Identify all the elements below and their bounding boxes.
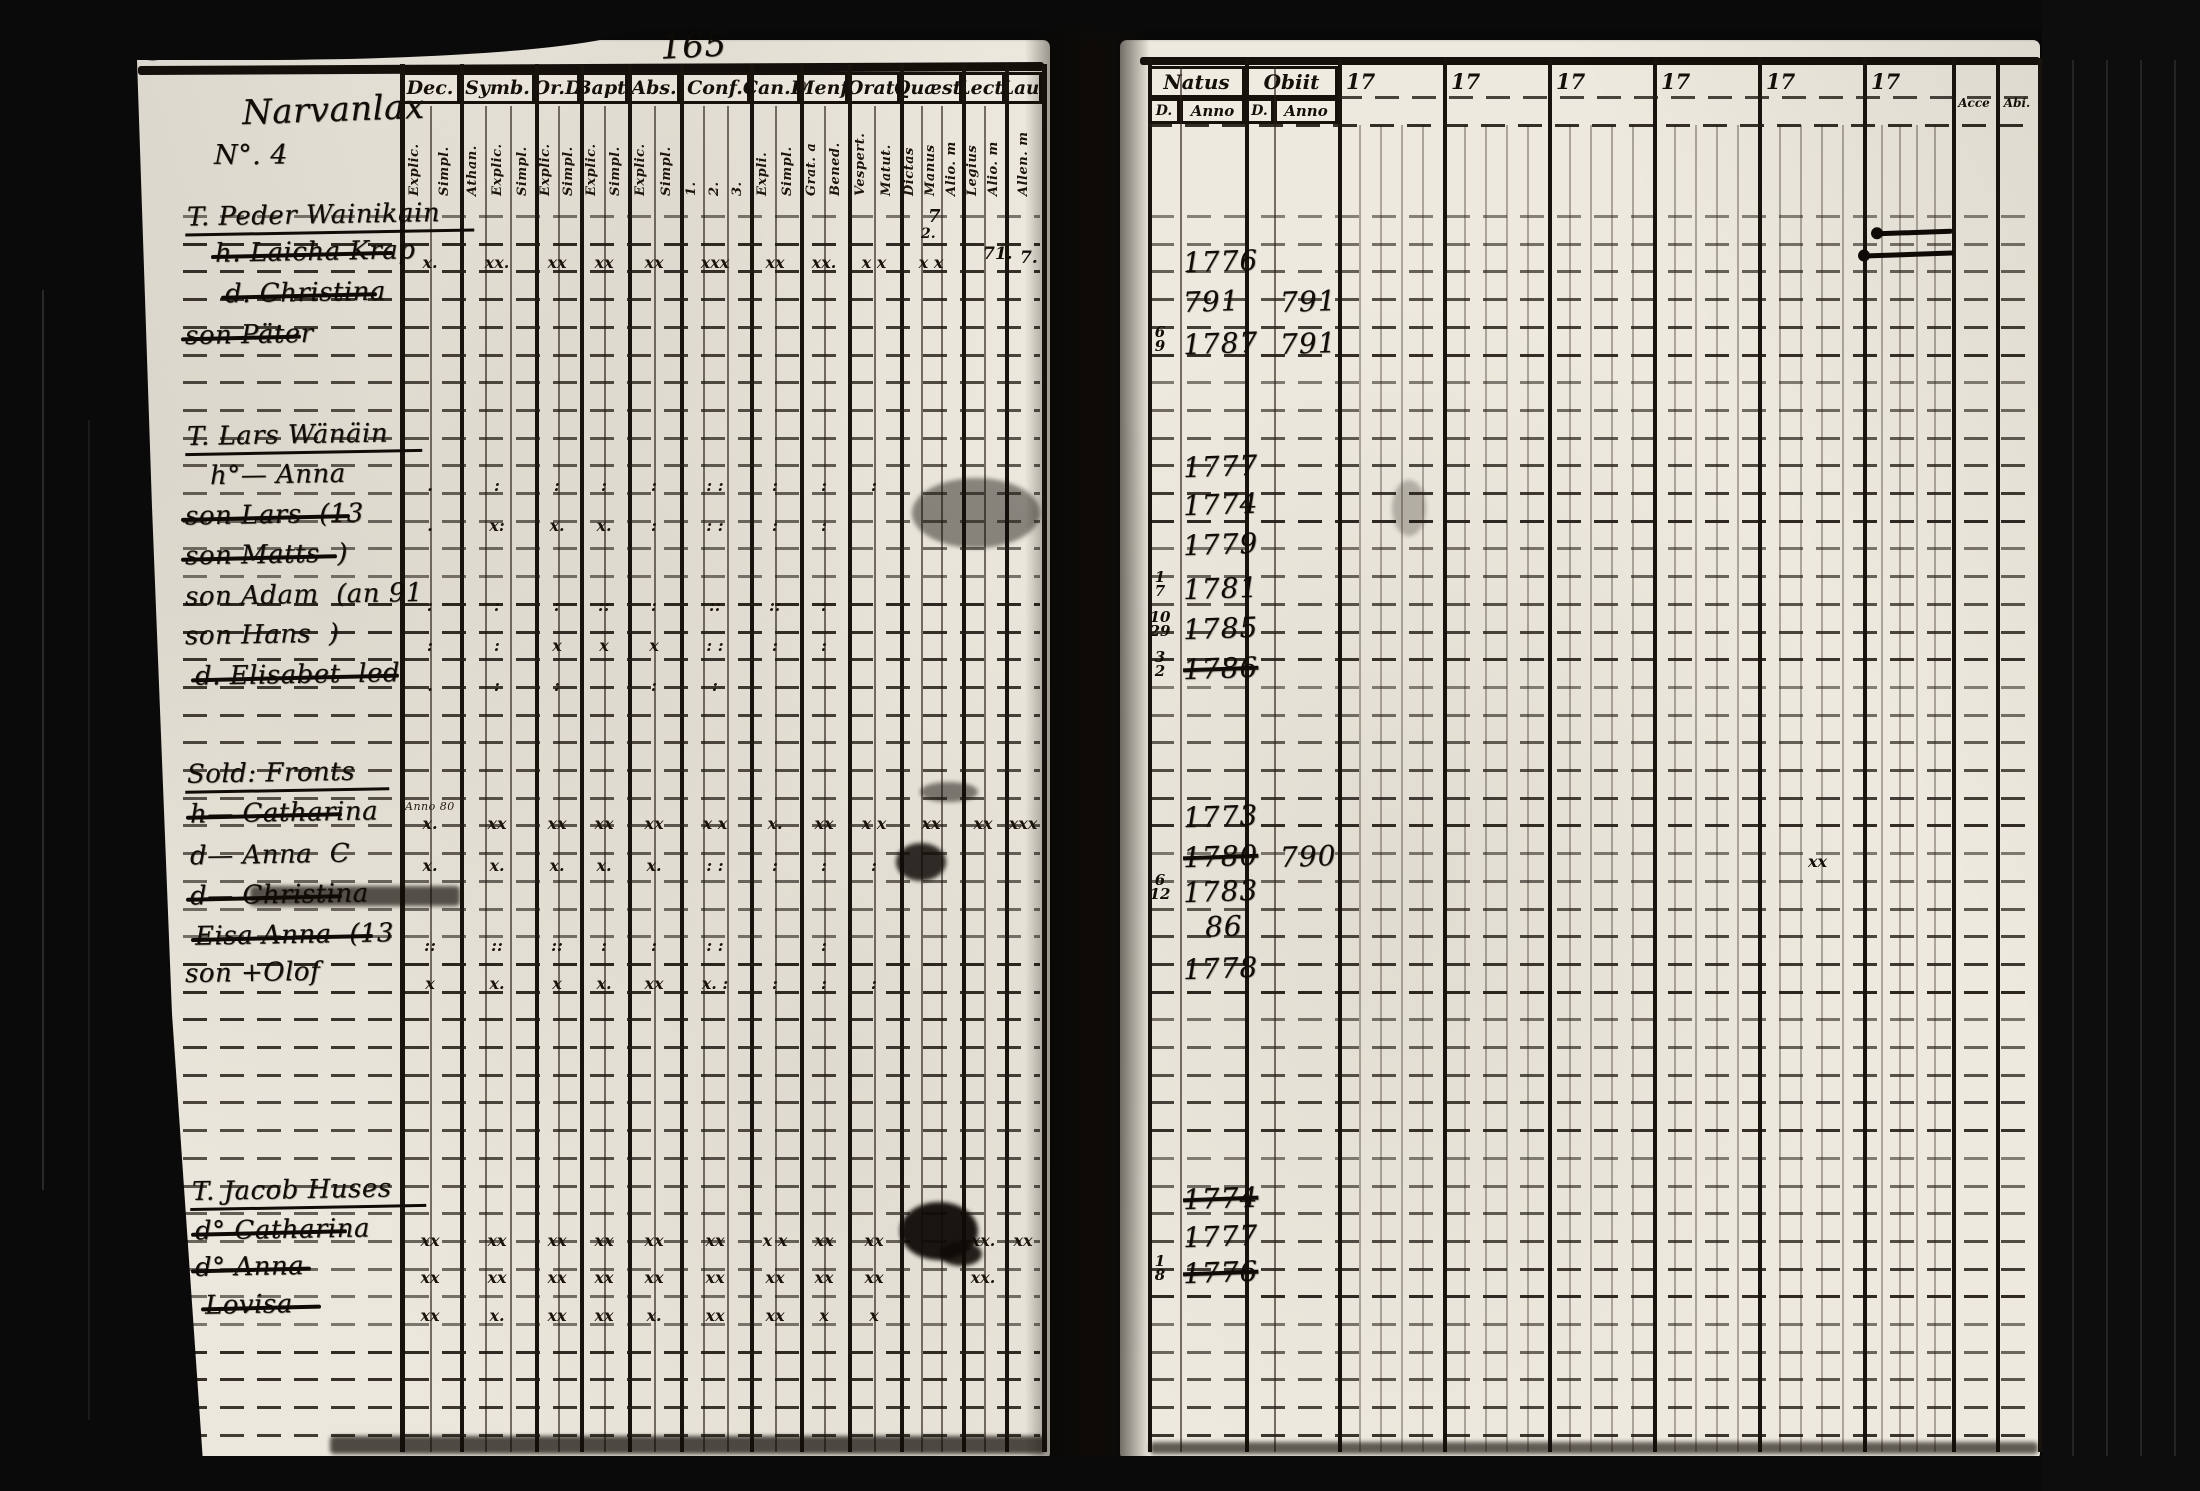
ink-blot — [920, 782, 978, 802]
right-major-line — [1443, 58, 1447, 1452]
year-sub-line — [1422, 125, 1424, 1452]
row-line-left — [183, 1295, 1040, 1298]
grid-major-line — [1042, 64, 1047, 1452]
exam-mark: xx. — [485, 253, 510, 272]
exam-mark: :: — [424, 936, 436, 955]
ink-mark: 71. — [983, 244, 1013, 264]
exam-mark: xx — [765, 253, 784, 272]
exam-mark: xxx — [1009, 814, 1038, 833]
row-line-right — [1150, 1185, 2036, 1188]
exam-mark: : — [821, 936, 827, 955]
exam-mark: : — [494, 636, 500, 655]
exam-mark: : — [651, 476, 657, 495]
ghost-line — [2106, 60, 2108, 1456]
natus-header: Natus — [1148, 66, 1245, 98]
natus-year: 1774 — [1182, 1181, 1258, 1217]
obiit-year: 791 — [1279, 326, 1337, 361]
right-header-rule — [1338, 96, 2038, 99]
year-sub-line — [1674, 125, 1676, 1452]
grid-subline — [510, 106, 512, 1452]
column-subheader: Explic. — [538, 110, 553, 196]
row-line-left — [183, 1101, 1040, 1104]
grid-subline — [558, 106, 560, 1452]
row-line-right — [1150, 575, 2036, 578]
exam-mark: xx — [594, 1231, 613, 1250]
year-sub-line — [1842, 125, 1844, 1452]
row-line-right — [1150, 686, 2036, 689]
scanned-parish-register: { "document": { "folio_number": "324", "… — [0, 0, 2200, 1491]
row-line-right — [1150, 1101, 2036, 1104]
year-sub-line — [1380, 125, 1382, 1452]
exam-mark: x. — [596, 516, 611, 535]
exam-mark: xx — [814, 1231, 833, 1250]
natus-year: 791 — [1182, 284, 1240, 319]
exam-mark: : — [651, 516, 657, 535]
exam-mark: x — [552, 974, 562, 993]
row-line-left — [183, 741, 1040, 744]
exam-mark: : — [821, 476, 827, 495]
exam-mark: xx — [547, 814, 566, 833]
column-subheader: Explic. — [490, 110, 505, 196]
year-column-header: 17 — [1758, 66, 1816, 96]
exam-mark: xx. — [812, 253, 837, 272]
exam-mark: : — [772, 636, 778, 655]
column-header-bapt: Bapt. — [580, 72, 628, 104]
row-line-right — [1150, 714, 2036, 717]
exam-mark: xx — [705, 1231, 724, 1250]
scan-scratch — [88, 420, 90, 1420]
exam-mark: xx — [594, 1268, 613, 1287]
natus-year: 1779 — [1182, 527, 1258, 563]
exam-mark: xx — [487, 1268, 506, 1287]
column-header-symb: Symb. — [460, 72, 535, 104]
obiit-anno-header: Anno — [1274, 98, 1338, 124]
exam-mark: x x — [862, 814, 887, 833]
natus-year: 1780 — [1182, 839, 1258, 875]
row-line-right — [1150, 1434, 2036, 1437]
exam-mark: xx — [921, 814, 940, 833]
column-header-lect: Lect. — [962, 72, 1005, 104]
exam-mark: : — [871, 856, 877, 875]
entry-name: son Adam (an 91 — [185, 578, 423, 612]
exam-mark: x. — [596, 974, 611, 993]
right-sub-line — [1274, 66, 1276, 1452]
exam-mark: x — [425, 974, 435, 993]
column-subheader: Explic. — [584, 110, 599, 196]
year-column-header: 17 — [1338, 66, 1396, 96]
natus-year: 1773 — [1182, 799, 1258, 835]
exam-mark: : — [871, 476, 877, 495]
natus-year: 1777 — [1182, 449, 1258, 485]
natus-year: 1787 — [1182, 326, 1258, 362]
exam-mark: x. — [549, 856, 564, 875]
year-sub-line — [1881, 125, 1883, 1452]
column-subheader: 2. — [707, 110, 722, 196]
exam-mark: : : — [706, 636, 723, 655]
exam-mark: : — [651, 676, 657, 695]
column-subheader: Vespert. — [853, 110, 868, 196]
exam-mark: xx — [594, 1306, 613, 1325]
exam-mark: xx — [644, 814, 663, 833]
right-header-rule2 — [1148, 124, 2036, 127]
year-column-header: 17 — [1443, 66, 1501, 96]
exam-mark: : — [821, 596, 827, 615]
natus-day-part: 12 — [1150, 887, 1171, 901]
row-line-right — [1150, 631, 2036, 634]
grid-subline — [775, 106, 777, 1452]
natus-year: 86 — [1204, 909, 1243, 943]
natus-year: 1786 — [1182, 651, 1258, 687]
row-line-left — [183, 354, 1040, 357]
entry-name: d— Anna C — [190, 839, 351, 872]
obiit-day-header: D. — [1245, 98, 1274, 124]
exam-mark: x. — [422, 814, 437, 833]
exam-mark: xx — [594, 814, 613, 833]
grid-subline — [654, 106, 656, 1452]
year-sub-line — [1611, 125, 1613, 1452]
year-sub-line — [1916, 125, 1918, 1452]
natus-day-part: 2 — [1155, 664, 1165, 678]
exam-mark: xx — [705, 1268, 724, 1287]
row-line-right — [1150, 215, 2036, 218]
column-subheader: Expli. — [755, 110, 770, 196]
exam-mark: : — [494, 476, 500, 495]
exam-mark: : — [651, 936, 657, 955]
exam-mark: x. — [549, 516, 564, 535]
exam-mark: xx — [594, 253, 613, 272]
row-line-left — [183, 1157, 1040, 1160]
row-line-right — [1150, 963, 2036, 966]
scan-edge-right — [2042, 0, 2200, 1491]
exam-mark: : — [712, 676, 718, 695]
exam-mark: xx — [547, 1231, 566, 1250]
right-major-line — [1996, 58, 2000, 1452]
register-spread: 324 165 Narvanlax N°. 4 Dec.Explic.Simpl… — [0, 0, 2200, 1491]
exam-mark: xx — [547, 1306, 566, 1325]
exam-mark: : — [554, 676, 560, 695]
row-line-right — [1150, 741, 2036, 744]
column-subheader: Matut. — [879, 110, 894, 196]
exam-mark: x: — [489, 516, 504, 535]
exam-mark: x. — [489, 1306, 504, 1325]
exam-mark: x. — [646, 1306, 661, 1325]
exam-mark: xx — [644, 253, 663, 272]
year-sub-line — [1737, 125, 1739, 1452]
exam-mark: x. — [489, 856, 504, 875]
column-subheader: Legius — [965, 110, 980, 196]
row-line-right — [1150, 1157, 2036, 1160]
right-major-line — [1653, 58, 1657, 1452]
row-line-right — [1150, 464, 2036, 467]
row-line-right — [1150, 381, 2036, 384]
entry-name: son Hans ) — [185, 619, 340, 652]
column-subheader: Allen. m — [1016, 110, 1031, 196]
natus-anno-header: Anno — [1180, 98, 1245, 124]
natus-day-part: 7 — [1155, 584, 1165, 598]
entry-note: Anno 80 — [405, 800, 455, 813]
column-subheader: Athan. — [465, 110, 480, 196]
exam-mark: xx. — [971, 1268, 996, 1287]
column-subheader: Dictas — [902, 110, 917, 196]
year-sub-line — [1899, 125, 1901, 1452]
column-header-lau: Lau. — [1005, 72, 1042, 104]
exam-mark: x — [649, 636, 659, 655]
accessit-header: Acce — [1952, 90, 1996, 116]
exam-mark: x. — [489, 974, 504, 993]
exam-mark: x. — [422, 253, 437, 272]
natus-year: 1774 — [1182, 487, 1258, 523]
row-line-right — [1150, 1323, 2036, 1326]
exam-mark: x. — [646, 856, 661, 875]
year-sub-line — [1716, 125, 1718, 1452]
year-column-header: 17 — [1653, 66, 1711, 96]
natus-year: 1785 — [1182, 611, 1258, 647]
grid-subline — [874, 106, 876, 1452]
ink-mark: xx — [1808, 852, 1827, 871]
natus-year: 1777 — [1182, 1219, 1258, 1255]
exam-mark: : — [427, 636, 433, 655]
entry-heavy-blot — [250, 886, 460, 906]
exam-mark: : : — [706, 476, 723, 495]
exam-mark: : : — [706, 936, 723, 955]
natus-year: 1776 — [1182, 244, 1258, 280]
exam-mark: : — [772, 516, 778, 535]
right-major-line — [1758, 58, 1762, 1452]
natus-day-part: 29 — [1150, 624, 1171, 638]
ink-mark: 7. — [1020, 248, 1038, 268]
right-top-rule — [1140, 57, 2040, 65]
ink-blot — [940, 1242, 982, 1266]
exam-mark: . — [427, 516, 433, 535]
exam-mark: : — [772, 974, 778, 993]
right-sub-line — [1180, 66, 1182, 1452]
column-subheader: Simpl. — [561, 110, 576, 196]
row-line-left — [183, 714, 1040, 717]
exam-mark: x — [869, 1306, 879, 1325]
scan-edge-bottom — [0, 1456, 2200, 1491]
natus-year: 1776 — [1182, 1255, 1258, 1291]
exam-mark: x — [819, 1306, 829, 1325]
exam-mark: . — [427, 676, 433, 695]
exam-mark: : : — [706, 516, 723, 535]
exam-mark: : — [494, 676, 500, 695]
row-line-left — [183, 1129, 1040, 1132]
exam-mark: : — [821, 856, 827, 875]
row-line-left — [183, 409, 1040, 412]
obiit-year: 791 — [1279, 284, 1337, 319]
grid-subline — [430, 106, 432, 1452]
exam-mark: x. : — [702, 974, 729, 993]
exam-mark: x x — [919, 253, 944, 272]
year-sub-line — [1506, 125, 1508, 1452]
row-line-right — [1150, 991, 2036, 994]
grid-subline — [984, 106, 986, 1452]
row-line-left — [183, 575, 1040, 578]
exam-mark: : — [821, 974, 827, 993]
column-subheader: Simpl. — [515, 110, 530, 196]
ink-mark: 2. — [921, 226, 936, 242]
exam-mark: xx — [765, 1306, 784, 1325]
row-line-right — [1150, 437, 2036, 440]
row-line-left — [183, 1018, 1040, 1021]
exam-mark: :: — [491, 936, 503, 955]
natus-day: 32 — [1155, 650, 1165, 678]
exam-mark: : — [871, 974, 877, 993]
exam-mark: : — [494, 596, 500, 615]
column-subheader: Grat. a — [804, 110, 819, 196]
exam-mark: xx — [420, 1268, 439, 1287]
row-line-right — [1150, 797, 2036, 800]
obiit-header: Obiit — [1245, 66, 1338, 98]
column-header-abs: Abs. — [628, 72, 680, 104]
exam-mark: xx — [487, 814, 506, 833]
column-subheader: Alio. m — [986, 110, 1001, 196]
ghost-line — [2072, 60, 2074, 1456]
row-line-right — [1150, 1074, 2036, 1077]
row-line-right — [1150, 1268, 2036, 1271]
exam-mark: xx — [864, 1268, 883, 1287]
exam-mark: xxx — [701, 253, 730, 272]
grid-subline — [703, 106, 705, 1452]
row-line-right — [1150, 243, 2036, 246]
natus-year: 1783 — [1182, 874, 1258, 910]
year-sub-line — [1401, 125, 1403, 1452]
exam-mark: x. — [767, 814, 782, 833]
row-line-left — [183, 381, 1040, 384]
row-line-right — [1150, 547, 2036, 550]
natus-day: 69 — [1155, 325, 1165, 353]
exam-mark: xx — [547, 1268, 566, 1287]
exam-mark: xx — [1013, 1231, 1032, 1250]
row-line-right — [1150, 1129, 2036, 1132]
ink-mark: 7 — [928, 206, 941, 227]
column-subheader: Simpl. — [437, 110, 452, 196]
row-line-right — [1150, 1351, 2036, 1354]
grid-subline — [604, 106, 606, 1452]
exam-mark: x. — [596, 856, 611, 875]
grid-subline — [485, 106, 487, 1452]
village-subtitle: N°. 4 — [214, 140, 288, 171]
exam-mark: x. — [422, 856, 437, 875]
column-subheader: 1. — [684, 110, 699, 196]
exam-mark: xx — [973, 814, 992, 833]
exam-mark: x x — [862, 253, 887, 272]
exam-mark: xx — [864, 1231, 883, 1250]
exam-mark: :: — [709, 596, 721, 615]
row-line-left — [183, 1351, 1040, 1354]
exam-mark: :: — [551, 936, 563, 955]
exam-mark: : — [772, 856, 778, 875]
year-sub-line — [1695, 125, 1697, 1452]
scan-scratch — [42, 290, 44, 1190]
column-subheader: Simpl. — [659, 110, 674, 196]
exam-mark: :: — [769, 596, 781, 615]
year-sub-line — [1590, 125, 1592, 1452]
year-sub-line — [1359, 125, 1361, 1452]
column-header-dec: Dec. — [400, 72, 460, 104]
row-line-right — [1150, 603, 2036, 606]
year-sub-line — [1464, 125, 1466, 1452]
right-major-line — [1863, 58, 1867, 1452]
row-line-right — [1150, 270, 2036, 273]
exam-mark: xx — [420, 1231, 439, 1250]
column-subheader: Simpl. — [608, 110, 623, 196]
ghost-line — [2174, 60, 2176, 1456]
entry-name: T. Peder Wainikain — [185, 197, 475, 236]
exam-mark: : — [772, 476, 778, 495]
exam-mark: : — [554, 596, 560, 615]
exam-mark: xx — [644, 1231, 663, 1250]
row-line-right — [1150, 658, 2036, 661]
row-line-right — [1150, 1018, 2036, 1021]
row-line-right — [1150, 1406, 2036, 1409]
right-bottom-smear — [1150, 1442, 2038, 1454]
row-line-right — [1150, 409, 2036, 412]
grid-subline — [824, 106, 826, 1452]
year-sub-line — [1527, 125, 1529, 1452]
row-line-right — [1150, 520, 2036, 523]
row-line-right — [1150, 1240, 2036, 1243]
row-line-right — [1150, 1295, 2036, 1298]
natus-day: 18 — [1155, 1254, 1165, 1282]
exam-mark: : — [821, 516, 827, 535]
exam-mark: : — [651, 596, 657, 615]
exam-mark: xx — [487, 1231, 506, 1250]
exam-mark: xx — [420, 1306, 439, 1325]
column-header-conf: Conf. — [680, 72, 750, 104]
column-subheader: Bened. — [828, 110, 843, 196]
ink-blot — [1392, 480, 1426, 536]
year-sub-line — [1800, 125, 1802, 1452]
row-line-right — [1150, 880, 2036, 883]
column-header-qust: Quæst. — [900, 72, 962, 104]
abiit-header: Abi. — [1996, 90, 2038, 116]
column-header-orat: Orat. — [848, 72, 900, 104]
village-title: Narvanlax — [241, 87, 425, 133]
natus-day: 17 — [1155, 570, 1165, 598]
entry-name: son +Olof — [185, 957, 321, 989]
column-subheader: 3. — [730, 110, 745, 196]
exam-mark: xx — [814, 814, 833, 833]
exam-mark: xx — [814, 1268, 833, 1287]
natus-day-part: 9 — [1155, 339, 1165, 353]
natus-day-header: D. — [1148, 98, 1180, 124]
year-sub-line — [1779, 125, 1781, 1452]
ink-blot — [912, 478, 1040, 548]
row-line-right — [1150, 492, 2036, 495]
column-subheader: Explic. — [407, 110, 422, 196]
exam-mark: xx — [644, 974, 663, 993]
row-line-left — [183, 1406, 1040, 1409]
year-column-header: 17 — [1548, 66, 1606, 96]
ghost-line — [2140, 60, 2142, 1456]
column-subheader: Manus — [923, 110, 938, 196]
entry-name: T. Jacob Huses — [190, 1173, 426, 1211]
column-subheader: Explic. — [633, 110, 648, 196]
exam-mark: : — [554, 476, 560, 495]
exam-mark: : : — [706, 856, 723, 875]
exam-mark: x — [599, 636, 609, 655]
right-major-line — [1148, 58, 1152, 1452]
right-major-line — [1338, 58, 1342, 1452]
entry-name: h°— Anna — [210, 459, 346, 491]
column-subheader: Simpl. — [780, 110, 795, 196]
column-subheader: Alio. m — [944, 110, 959, 196]
row-line-right — [1150, 769, 2036, 772]
row-line-left — [183, 1378, 1040, 1381]
left-bottom-smear — [330, 1436, 1045, 1454]
exam-mark: : — [821, 636, 827, 655]
